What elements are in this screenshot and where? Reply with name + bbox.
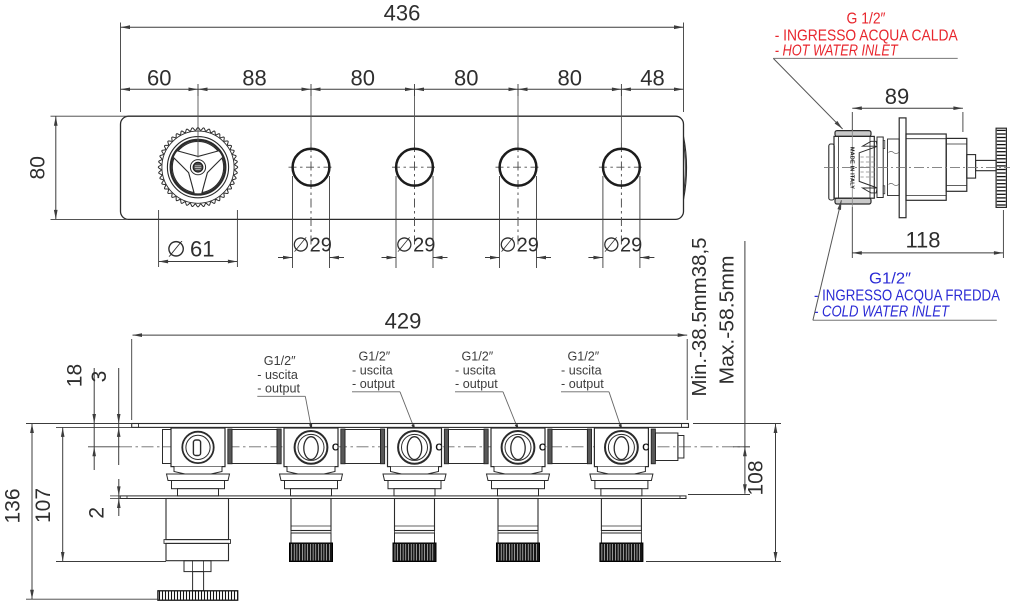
svg-text:136: 136 xyxy=(2,488,25,523)
svg-text:- INGRESSO ACQUA FREDDA: - INGRESSO ACQUA FREDDA xyxy=(814,288,1001,305)
svg-text:107: 107 xyxy=(32,488,55,523)
svg-text:48: 48 xyxy=(640,65,664,90)
svg-text:80: 80 xyxy=(454,65,478,90)
svg-text:2: 2 xyxy=(86,507,109,519)
svg-text:C: C xyxy=(642,443,649,454)
svg-text:- output: - output xyxy=(561,377,604,391)
svg-text:G1/2″: G1/2″ xyxy=(359,350,391,364)
svg-text:60: 60 xyxy=(147,65,171,90)
svg-text:- output: - output xyxy=(455,377,498,391)
svg-text:- output: - output xyxy=(352,377,395,391)
svg-text:∅29: ∅29 xyxy=(499,235,539,257)
svg-text:436: 436 xyxy=(384,1,421,26)
svg-text:C: C xyxy=(435,443,442,454)
svg-text:18: 18 xyxy=(64,364,87,387)
svg-text:- output: - output xyxy=(257,382,300,396)
svg-text:∅29: ∅29 xyxy=(603,235,643,257)
svg-text:Min.-38.5mm38,5: Min.-38.5mm38,5 xyxy=(689,238,711,397)
svg-text:- COLD WATER INLET: - COLD WATER INLET xyxy=(814,304,950,321)
svg-text:∅29: ∅29 xyxy=(292,235,332,257)
svg-text:G1/2″: G1/2″ xyxy=(568,350,600,364)
svg-text:- uscita: - uscita xyxy=(455,363,496,377)
svg-text:∅29: ∅29 xyxy=(396,235,436,257)
svg-text:C: C xyxy=(332,443,339,454)
svg-text:- uscita: - uscita xyxy=(352,363,393,377)
svg-text:118: 118 xyxy=(905,228,940,253)
svg-text:∅ 61: ∅ 61 xyxy=(166,237,214,262)
svg-text:G1/2″: G1/2″ xyxy=(462,350,494,364)
svg-text:80: 80 xyxy=(27,156,50,179)
svg-text:429: 429 xyxy=(385,308,422,333)
svg-text:Max.-58.5mm: Max.-58.5mm xyxy=(717,256,739,385)
svg-text:- uscita: - uscita xyxy=(257,368,298,382)
svg-text:G1/2″: G1/2″ xyxy=(264,354,296,368)
svg-text:- uscita: - uscita xyxy=(561,363,602,377)
svg-text:C: C xyxy=(539,443,546,454)
svg-text:3: 3 xyxy=(88,371,111,383)
svg-text:80: 80 xyxy=(351,65,375,90)
svg-text:- HOT WATER INLET: - HOT WATER INLET xyxy=(775,43,899,60)
svg-text:80: 80 xyxy=(557,65,581,90)
svg-text:108: 108 xyxy=(745,460,768,495)
svg-text:G 1/2″: G 1/2″ xyxy=(847,11,886,28)
svg-text:G1/2″: G1/2″ xyxy=(869,271,912,288)
svg-text:MADE IN ITALY: MADE IN ITALY xyxy=(849,147,855,189)
svg-text:89: 89 xyxy=(885,84,909,109)
svg-text:88: 88 xyxy=(242,65,266,90)
